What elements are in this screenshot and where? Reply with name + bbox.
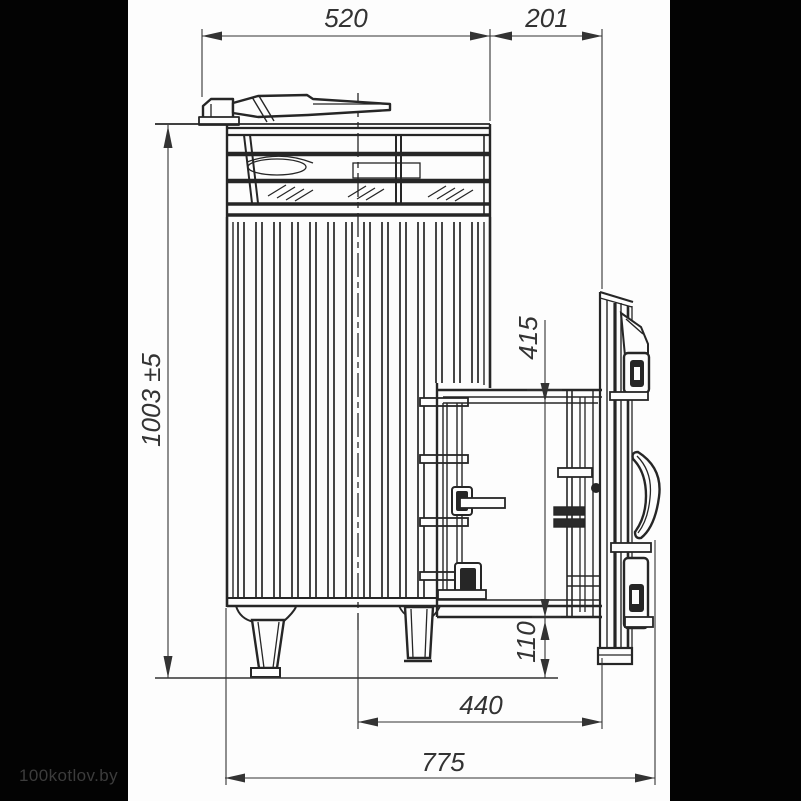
firebox-door	[598, 292, 660, 664]
body-casing	[227, 217, 602, 607]
label-overall-depth: 775	[421, 747, 465, 777]
stove	[155, 93, 660, 729]
watermark: 100kotlov.by	[19, 766, 118, 786]
support-leg-rear	[399, 606, 440, 661]
tunnel-latch-mid	[452, 487, 505, 515]
label-tunnel-height: 415	[513, 316, 543, 360]
screenshot-root: 520 201 1003 ±5 415 110 440 775 100kotlo…	[0, 0, 801, 801]
label-overall-height: 1003 ±5	[136, 353, 166, 447]
label-top-offset: 201	[524, 3, 568, 33]
support-leg-front	[236, 606, 296, 677]
label-floor-clearance: 110	[511, 621, 541, 663]
stove-technical-drawing: 520 201 1003 ±5 415 110 440 775	[0, 0, 801, 801]
door-bottom	[598, 648, 632, 664]
stones-sketch	[247, 156, 473, 201]
label-axis-to-door: 440	[459, 690, 503, 720]
tunnel-latch-bottom	[438, 563, 486, 599]
damper-lever	[199, 95, 390, 125]
firebox-tunnel	[437, 383, 602, 617]
dim-201	[490, 29, 602, 289]
label-top-width: 520	[324, 3, 368, 33]
door-handle	[633, 452, 660, 538]
